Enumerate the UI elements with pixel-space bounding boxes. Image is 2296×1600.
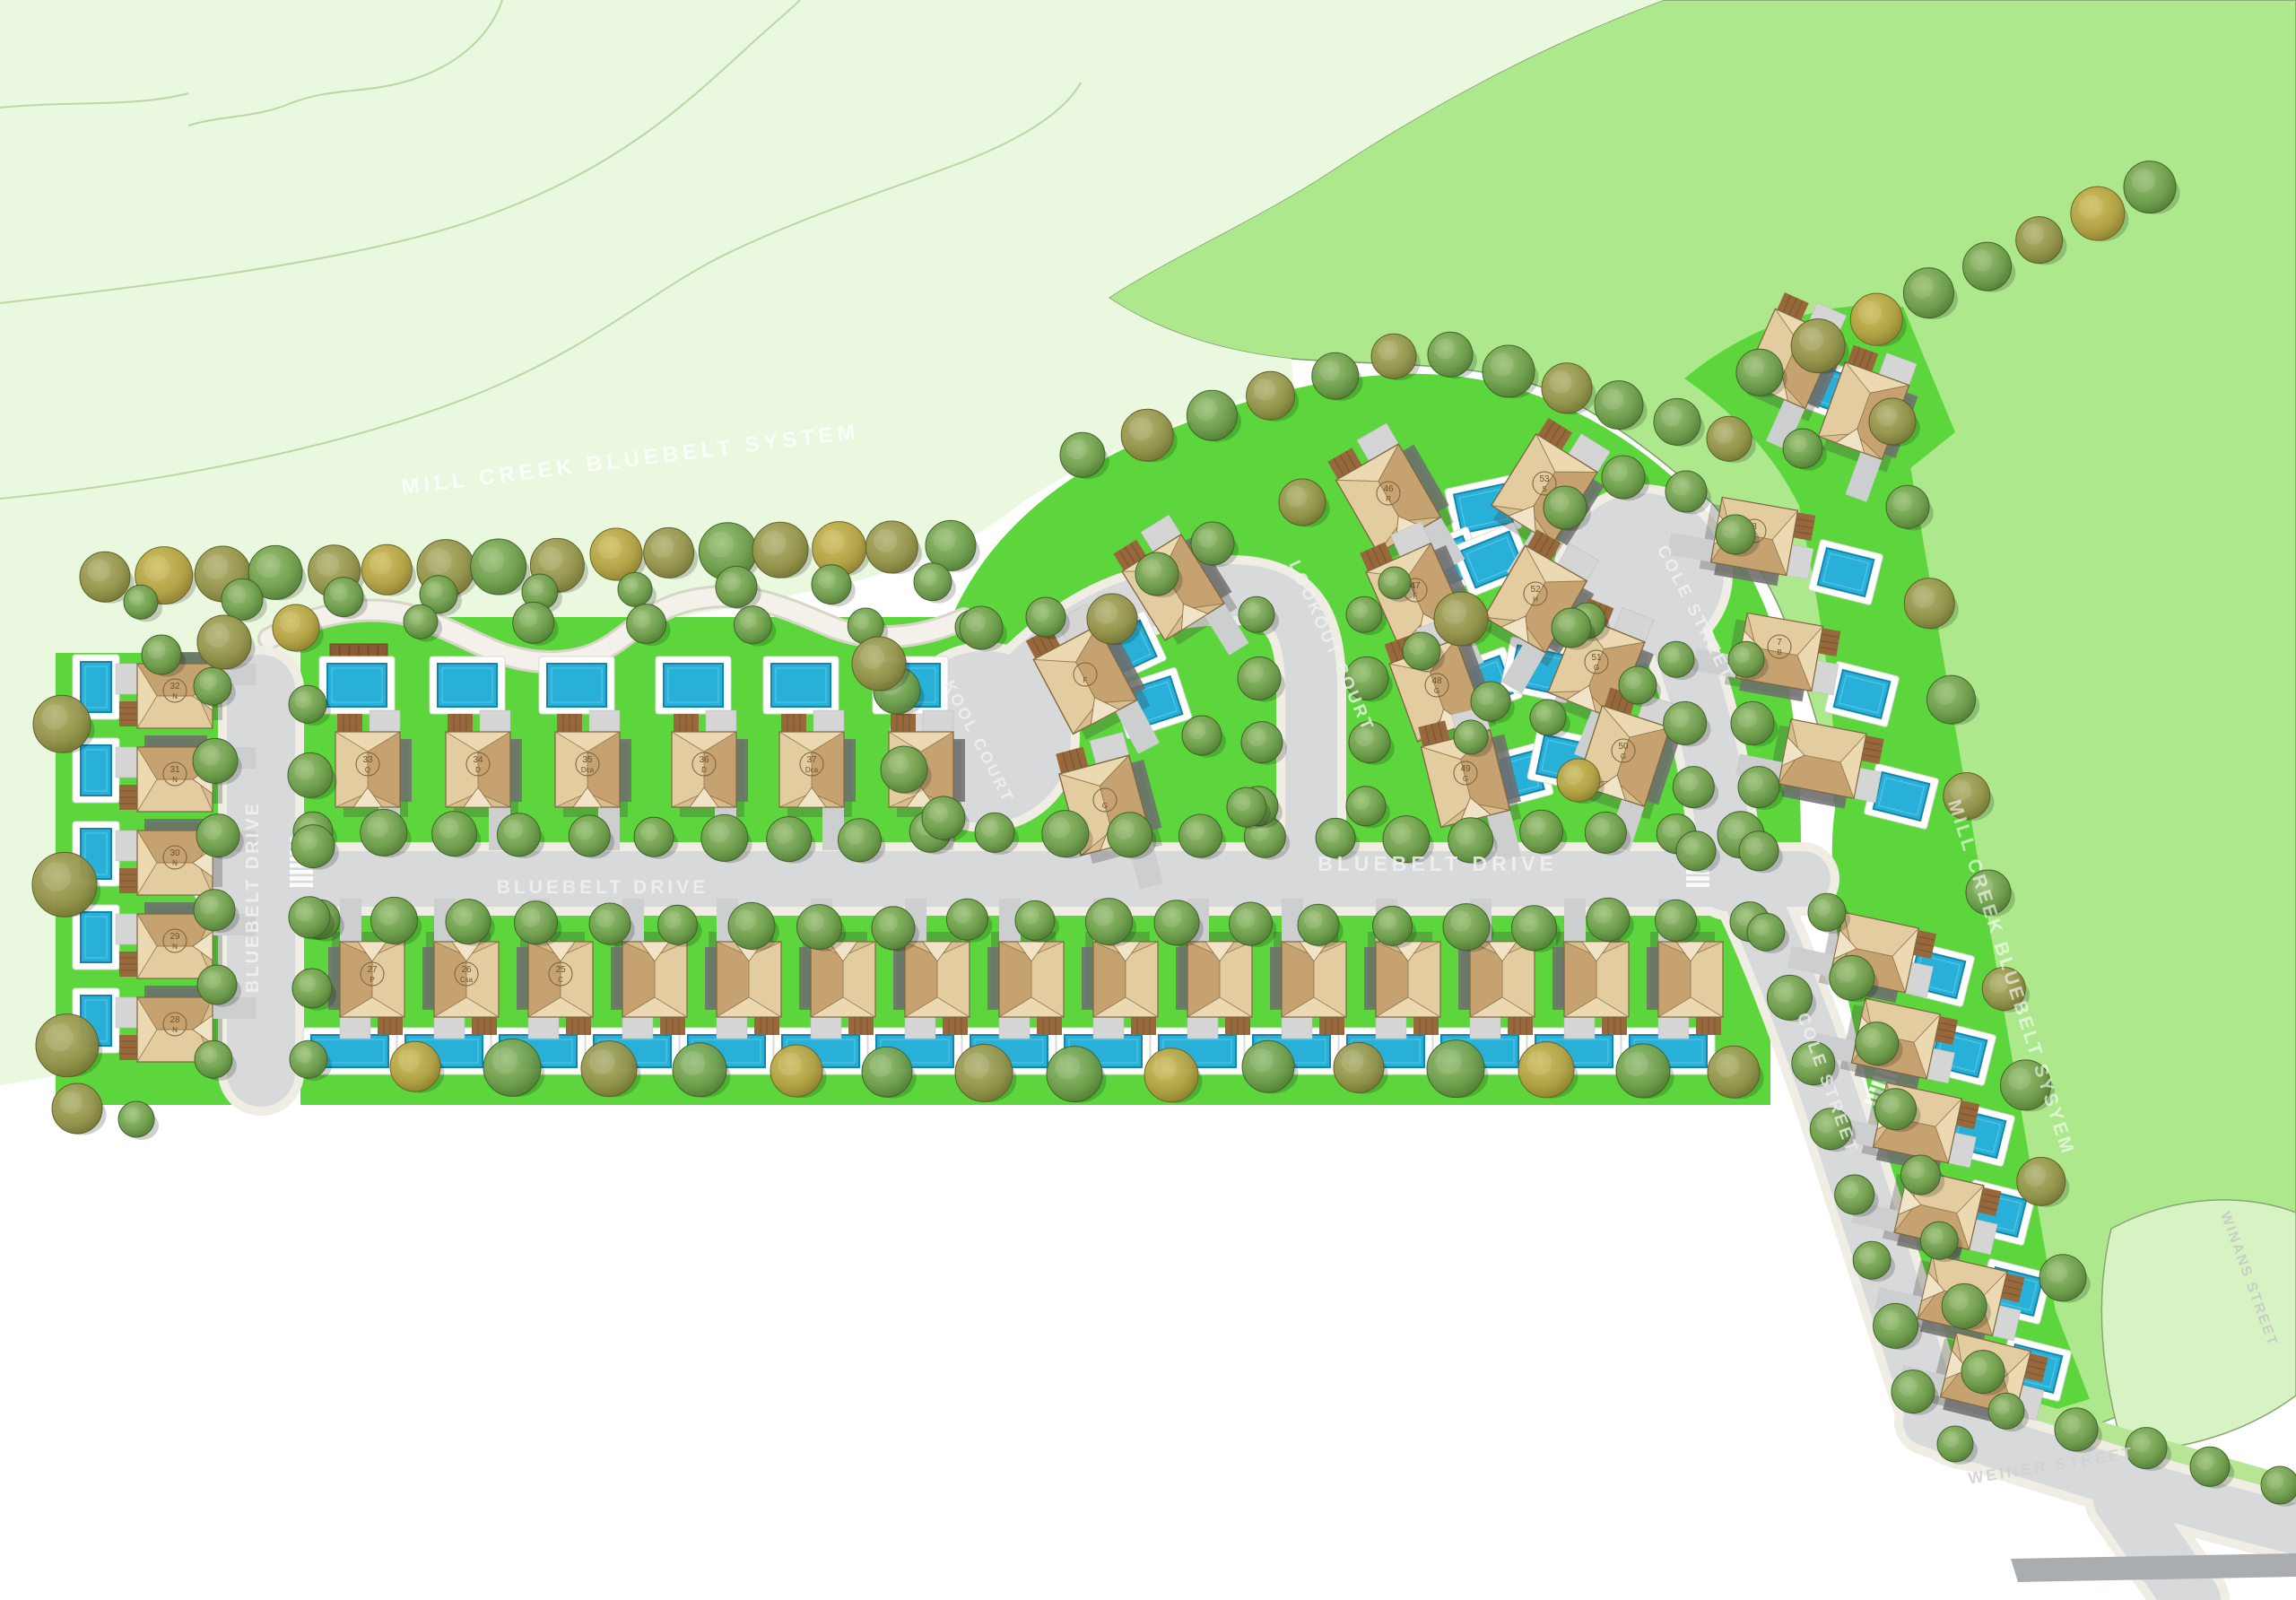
lot-type: Dca [805,766,819,774]
house-deck [781,714,806,732]
lot-type: N [172,776,178,784]
house-deck [119,952,137,977]
house-deck [660,1017,685,1035]
lot-number: 46 [1383,484,1394,494]
house-deck [1131,1017,1156,1035]
street-label: BLUEBELT DRIVE [1318,852,1558,875]
lot-number: 27 [367,965,378,975]
lot-type: Dca [581,766,595,774]
lot-type: S [1542,485,1546,493]
lot-type: G [1463,775,1468,783]
house-deck [378,1017,403,1035]
house-deck [557,714,582,732]
lot-type: N [172,943,178,951]
lot-number: 29 [170,932,180,942]
lot-type: H [1533,596,1538,604]
street-label: BLUEBELT DRIVE [243,801,263,993]
lot-type: G [1594,664,1599,672]
lot-number: 28 [170,1015,180,1025]
pool [319,657,395,714]
site-plan-page: 32N31N30N29N28N33Q34D35Dca36D37Dca27P26C… [0,0,2296,1600]
lot-type: D [475,766,481,774]
lot-type: G [1102,802,1108,810]
pool [539,657,614,714]
lot-number: 49 [1460,764,1471,774]
lot-type: Q [365,766,370,774]
house-deck [848,1017,874,1035]
lot-type: D [701,766,707,774]
lot-number: 30 [170,848,180,858]
house-deck [754,1017,779,1035]
lot-number: 26 [461,965,472,975]
lot-number: 7 [1777,638,1782,648]
lot-type: G [1434,687,1439,695]
house-deck [1602,1017,1627,1035]
lot-type: C [558,976,563,984]
house-deck [119,785,137,810]
house-deck [472,1017,497,1035]
lot-number: 48 [1431,676,1442,686]
street-label: BLUEBELT DRIVE [497,877,709,898]
house-deck [891,714,916,732]
house-deck [1037,1017,1062,1035]
lot-type: F [1083,676,1088,684]
house-deck [1319,1017,1344,1035]
lot-type: N [172,859,178,867]
tree [118,1101,159,1140]
pool [656,657,731,714]
lot-number: 34 [473,755,483,765]
lot-number: 51 [1591,653,1602,663]
lot-type: B [1777,648,1781,657]
lot-number: 31 [170,765,180,775]
lot-number: 52 [1530,585,1541,595]
house-deck [119,868,137,893]
lot-number: 32 [170,682,180,691]
pool [430,657,505,714]
lot-number: 35 [582,755,593,765]
house-deck [943,1017,968,1035]
lot-number: 33 [362,755,373,765]
lot-number: 50 [1618,742,1629,752]
lot-number: 36 [699,755,709,765]
house-deck [1508,1017,1533,1035]
house-deck [1225,1017,1250,1035]
house-deck [1696,1017,1721,1035]
lot-type: R [1386,495,1391,503]
lot-type: P [370,976,374,984]
lot-type: Csa [460,976,474,984]
house-deck [119,1035,137,1060]
lot-type: N [172,1026,178,1034]
house-deck [337,714,362,732]
lot-number: 37 [806,755,817,765]
lot-number: 53 [1539,474,1550,484]
pool [763,657,839,714]
house-deck [448,714,473,732]
lot-type: N [172,692,178,700]
existing-street-strip [2011,1553,2296,1582]
house-deck [566,1017,591,1035]
lot-number: 25 [555,965,566,975]
house-deck [674,714,699,732]
house-deck [1413,1017,1439,1035]
lot-type: G [1621,752,1626,761]
site-plan-map: 32N31N30N29N28N33Q34D35Dca36D37Dca27P26C… [0,0,2296,1600]
house-deck [119,701,137,726]
